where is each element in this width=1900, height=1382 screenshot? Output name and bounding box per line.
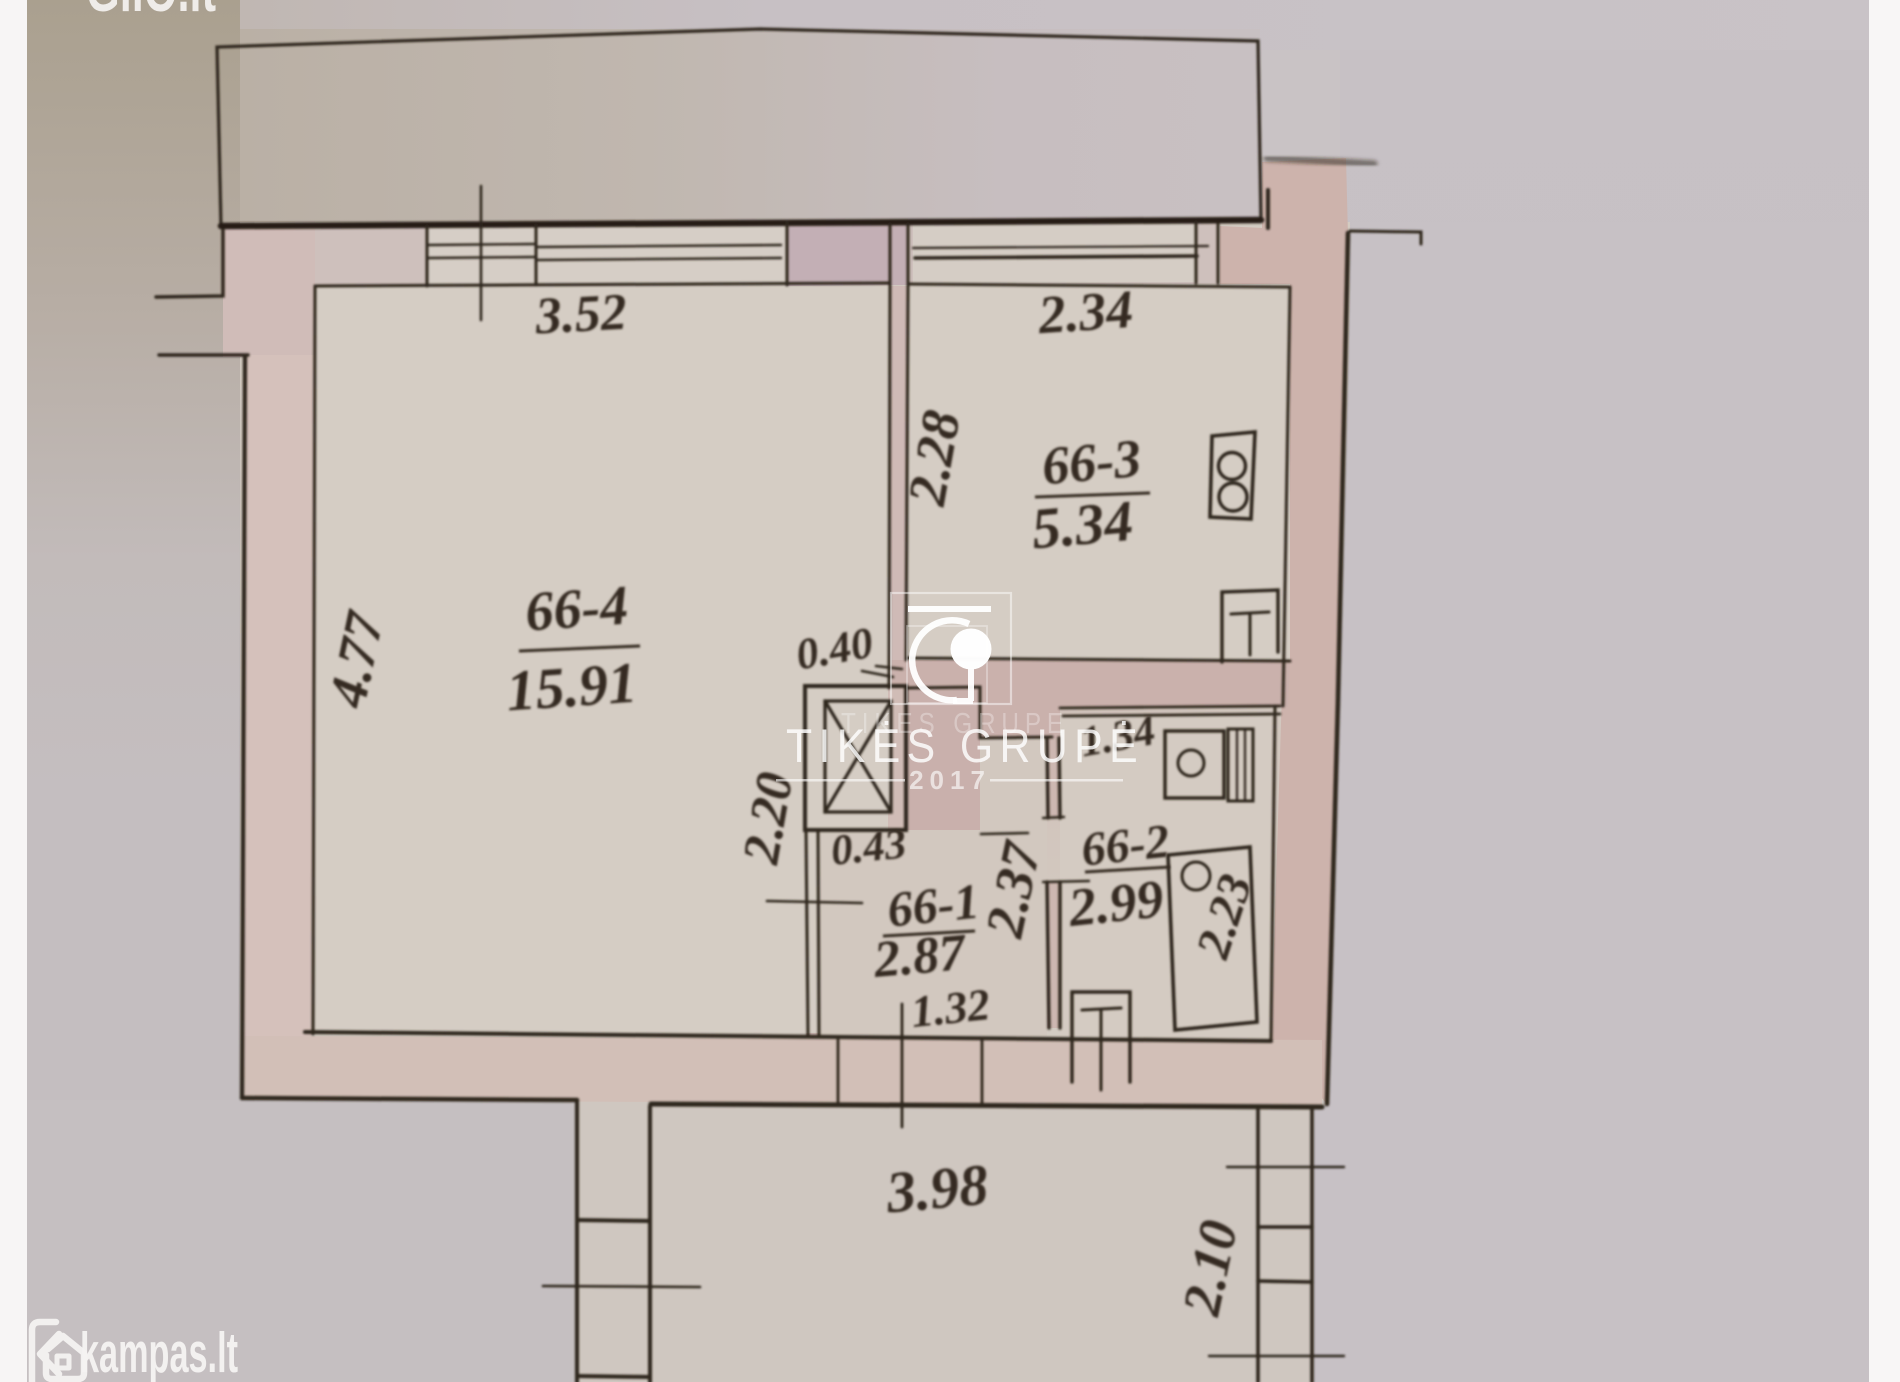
- svg-text:GliO.lt: GliO.lt: [86, 0, 216, 25]
- svg-text:kampas.lt: kampas.lt: [80, 1321, 238, 1382]
- svg-text:2017: 2017: [909, 765, 991, 795]
